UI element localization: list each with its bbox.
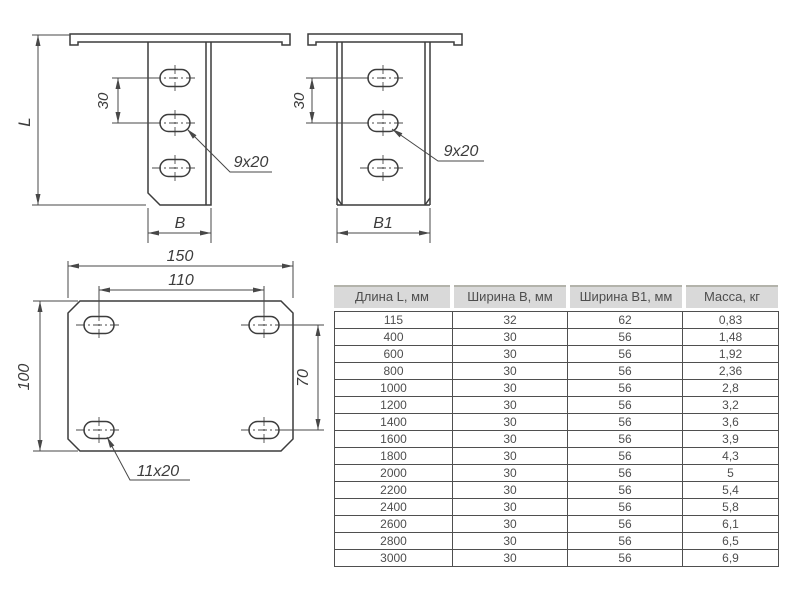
table-cell: 30 bbox=[453, 550, 568, 567]
table-cell: 30 bbox=[453, 329, 568, 346]
table-row: 80030562,36 bbox=[335, 363, 779, 380]
slot-hole bbox=[152, 155, 198, 181]
table-cell: 56 bbox=[568, 533, 683, 550]
table-cell: 30 bbox=[453, 363, 568, 380]
side-view: L 30 9x20 B bbox=[15, 34, 290, 243]
table-cell: 56 bbox=[568, 465, 683, 482]
dim-label-hole-pitch: 30 bbox=[291, 92, 308, 109]
table-cell: 1800 bbox=[335, 448, 453, 465]
table-row: 260030566,1 bbox=[335, 516, 779, 533]
column-header-mass: Масса, кг bbox=[686, 285, 778, 308]
table-row: 240030565,8 bbox=[335, 499, 779, 516]
table-cell: 1000 bbox=[335, 380, 453, 397]
dim-label-hole-pitch: 30 bbox=[95, 92, 112, 109]
plan-view: 150 110 100 70 11x20 bbox=[16, 248, 324, 480]
hole-size-label: 11x20 bbox=[137, 463, 180, 480]
table-cell: 1,48 bbox=[683, 329, 779, 346]
table-cell: 3,2 bbox=[683, 397, 779, 414]
table-cell: 30 bbox=[453, 414, 568, 431]
dim-label-width-B: B bbox=[175, 215, 186, 232]
table-cell: 30 bbox=[453, 346, 568, 363]
table-cell: 4,3 bbox=[683, 448, 779, 465]
column-header-width-b1: Ширина B1, мм bbox=[570, 285, 682, 308]
table-cell: 56 bbox=[568, 550, 683, 567]
table-cell: 1400 bbox=[335, 414, 453, 431]
spec-table-body: 11532620,8340030561,4860030561,928003056… bbox=[335, 312, 779, 567]
slot-hole bbox=[241, 312, 287, 338]
table-cell: 600 bbox=[335, 346, 453, 363]
table-cell: 30 bbox=[453, 533, 568, 550]
table-cell: 30 bbox=[453, 380, 568, 397]
table-cell: 30 bbox=[453, 499, 568, 516]
table-cell: 6,1 bbox=[683, 516, 779, 533]
table-cell: 2,36 bbox=[683, 363, 779, 380]
dim-label-hole-span: 110 bbox=[168, 272, 194, 289]
table-row: 120030563,2 bbox=[335, 397, 779, 414]
table-cell: 5,4 bbox=[683, 482, 779, 499]
table-cell: 6,5 bbox=[683, 533, 779, 550]
hole-size-label: 9x20 bbox=[444, 143, 479, 160]
table-cell: 56 bbox=[568, 414, 683, 431]
slot-hole bbox=[76, 417, 122, 443]
table-cell: 3000 bbox=[335, 550, 453, 567]
table-cell: 56 bbox=[568, 346, 683, 363]
table-row: 200030565 bbox=[335, 465, 779, 482]
slot-hole bbox=[360, 65, 406, 91]
table-cell: 3,9 bbox=[683, 431, 779, 448]
table-cell: 30 bbox=[453, 516, 568, 533]
table-row: 100030562,8 bbox=[335, 380, 779, 397]
table-cell: 30 bbox=[453, 448, 568, 465]
table-cell: 2200 bbox=[335, 482, 453, 499]
page: L 30 9x20 B bbox=[0, 0, 800, 600]
table-cell: 30 bbox=[453, 482, 568, 499]
table-cell: 0,83 bbox=[683, 312, 779, 329]
table-cell: 30 bbox=[453, 431, 568, 448]
table-row: 11532620,83 bbox=[335, 312, 779, 329]
dim-label-width-B1: B1 bbox=[373, 215, 393, 232]
slot-hole bbox=[76, 312, 122, 338]
dim-label-overall-width: 150 bbox=[167, 248, 194, 265]
table-cell: 3,6 bbox=[683, 414, 779, 431]
table-cell: 56 bbox=[568, 380, 683, 397]
table-cell: 1,92 bbox=[683, 346, 779, 363]
spec-table: Длина L, мм Ширина B, мм Ширина B1, мм М… bbox=[334, 285, 778, 567]
table-cell: 32 bbox=[453, 312, 568, 329]
table-cell: 5 bbox=[683, 465, 779, 482]
table-row: 280030566,5 bbox=[335, 533, 779, 550]
table-cell: 400 bbox=[335, 329, 453, 346]
slot-hole bbox=[152, 65, 198, 91]
slot-hole bbox=[360, 155, 406, 181]
table-cell: 115 bbox=[335, 312, 453, 329]
table-cell: 56 bbox=[568, 482, 683, 499]
table-row: 220030565,4 bbox=[335, 482, 779, 499]
table-cell: 30 bbox=[453, 465, 568, 482]
table-cell: 2400 bbox=[335, 499, 453, 516]
hole-size-label: 9x20 bbox=[234, 154, 269, 171]
table-row: 140030563,6 bbox=[335, 414, 779, 431]
table-cell: 2,8 bbox=[683, 380, 779, 397]
table-cell: 2800 bbox=[335, 533, 453, 550]
spec-table-body-table: 11532620,8340030561,4860030561,928003056… bbox=[334, 311, 779, 567]
table-cell: 56 bbox=[568, 329, 683, 346]
table-cell: 800 bbox=[335, 363, 453, 380]
table-cell: 5,8 bbox=[683, 499, 779, 516]
table-cell: 2600 bbox=[335, 516, 453, 533]
table-row: 60030561,92 bbox=[335, 346, 779, 363]
table-cell: 56 bbox=[568, 363, 683, 380]
table-cell: 56 bbox=[568, 431, 683, 448]
table-cell: 56 bbox=[568, 499, 683, 516]
table-row: 160030563,9 bbox=[335, 431, 779, 448]
table-cell: 2000 bbox=[335, 465, 453, 482]
table-cell: 56 bbox=[568, 516, 683, 533]
table-row: 180030564,3 bbox=[335, 448, 779, 465]
table-cell: 56 bbox=[568, 397, 683, 414]
spec-table-header: Длина L, мм Ширина B, мм Ширина B1, мм М… bbox=[334, 285, 778, 308]
dim-label-length: L bbox=[15, 117, 34, 126]
table-cell: 30 bbox=[453, 397, 568, 414]
table-row: 300030566,9 bbox=[335, 550, 779, 567]
dim-label-hole-span-v: 70 bbox=[295, 369, 312, 387]
front-view: 30 9x20 B1 bbox=[291, 34, 484, 243]
dim-label-overall-height: 100 bbox=[16, 364, 33, 391]
column-header-width-b: Ширина B, мм bbox=[454, 285, 566, 308]
slot-hole bbox=[241, 417, 287, 443]
table-cell: 56 bbox=[568, 448, 683, 465]
table-cell: 62 bbox=[568, 312, 683, 329]
table-cell: 1200 bbox=[335, 397, 453, 414]
table-row: 40030561,48 bbox=[335, 329, 779, 346]
column-header-length: Длина L, мм bbox=[334, 285, 450, 308]
table-cell: 6,9 bbox=[683, 550, 779, 567]
table-cell: 1600 bbox=[335, 431, 453, 448]
